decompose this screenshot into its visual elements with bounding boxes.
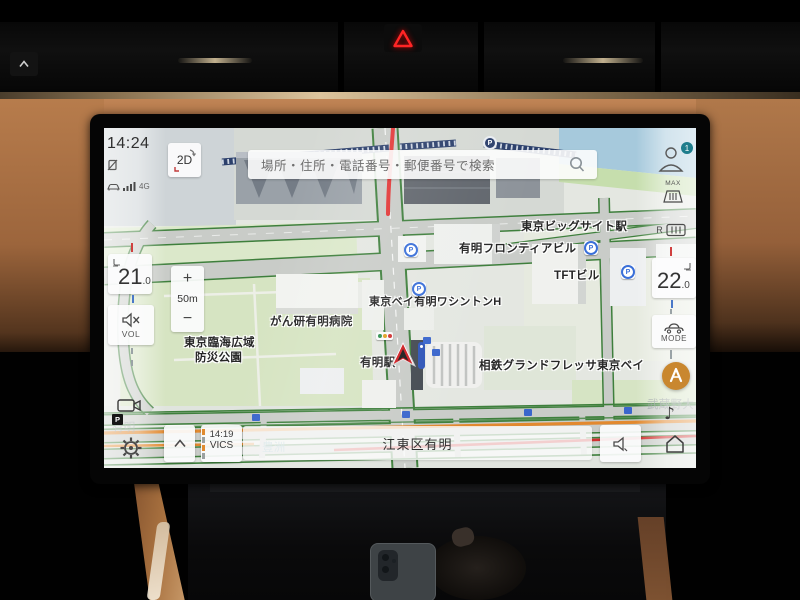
- map-label-washington-hotel: 東京ベイ有明ワシントンH: [369, 293, 502, 309]
- camera-parking-badge: P: [112, 414, 123, 425]
- map-scale: 50m: [177, 293, 197, 305]
- map-label-rinkai-park-1: 東京臨海広域: [184, 334, 255, 350]
- vics-timestamp: 14:19: [201, 429, 242, 440]
- max-defrost-label: MAX: [656, 180, 690, 187]
- vics-congestion-tick: [202, 437, 205, 443]
- drive-mode-label: MODE: [661, 334, 687, 343]
- status-cluster: 14:24 4G: [107, 135, 163, 191]
- current-location-pill: 江東区有明: [243, 426, 592, 460]
- parking-camera-button[interactable]: P: [114, 396, 150, 422]
- map-label-cancer-hospital: がん研有明病院: [270, 313, 353, 329]
- speaker-icon: [611, 435, 631, 453]
- rear-defrost-icon: [666, 223, 686, 237]
- gear-icon: [118, 435, 144, 461]
- chevron-up-icon: [173, 439, 187, 448]
- facility-marker: [524, 409, 532, 416]
- parking-icon: P: [412, 282, 426, 296]
- rear-defrost-label: R: [656, 225, 663, 235]
- vics-label: VICS: [201, 440, 242, 451]
- vent-divider: [655, 22, 661, 92]
- facility-marker: [624, 407, 632, 414]
- map-label-tft-building: TFTビル: [554, 267, 600, 283]
- max-defrost-button[interactable]: MAX: [656, 180, 690, 206]
- temp-slider-hot-tick: [131, 243, 133, 252]
- temp-slider-cold-tick: [671, 300, 673, 308]
- passenger-temperature-control[interactable]: 22.0: [652, 258, 696, 298]
- search-placeholder: 場所・住所・電話番号・郵便番号で検索: [248, 155, 567, 174]
- driver-temp-value: 21: [118, 264, 142, 289]
- dashboard-chrome-strip: [0, 92, 800, 99]
- profile-button[interactable]: 1: [656, 144, 692, 176]
- windshield-defrost-icon: [660, 187, 686, 204]
- facility-marker: [252, 414, 260, 421]
- search-input[interactable]: 場所・住所・電話番号・郵便番号で検索: [248, 150, 597, 179]
- dashboard-leather-left: [0, 99, 104, 364]
- parking-icon: P: [404, 243, 418, 257]
- slider-track: [670, 350, 672, 359]
- map-label-sotetsu-hotel: 相鉄グランドフレッサ東京ベイ: [479, 357, 644, 373]
- drive-mode-button[interactable]: MODE: [652, 315, 696, 348]
- zoom-in-button[interactable]: +: [183, 271, 192, 287]
- facility-marker: [432, 349, 440, 356]
- zoom-out-button[interactable]: −: [183, 311, 192, 327]
- hazard-warning-button[interactable]: [384, 24, 422, 52]
- parking-icon-dark: P: [483, 136, 497, 150]
- temp-slider-cold-tick: [132, 295, 134, 303]
- map-zoom-control: + 50m −: [171, 266, 204, 332]
- camera-icon: [114, 396, 144, 416]
- collapse-bar-button[interactable]: [164, 425, 195, 462]
- slider-track: [670, 309, 672, 314]
- driver-temp-decimal: .0: [142, 276, 150, 287]
- hand-reflection: [428, 536, 526, 600]
- vent-divider: [478, 22, 484, 92]
- volume-mute-button[interactable]: VOL: [108, 305, 154, 345]
- search-icon[interactable]: [567, 155, 587, 175]
- vent-divider: [338, 22, 344, 92]
- map-label-rinkai-park-2: 防災公園: [195, 349, 242, 365]
- map-label-frontier-building: 有明フロンティアビル: [459, 240, 576, 256]
- vics-congestion-tick: [202, 453, 205, 459]
- car-connectivity-icon: [107, 182, 120, 191]
- facility-marker: [402, 411, 410, 418]
- vics-congestion-tick: [202, 429, 205, 435]
- map-label-big-sight-station: 東京ビッグサイト駅: [521, 218, 627, 234]
- slider-track: [131, 348, 133, 366]
- phone-camera: [378, 550, 398, 581]
- home-icon: [664, 433, 686, 455]
- cabin-photo: 東京ビッグサイト駅 有明フロンティアビル TFTビル 東京ベイ有明ワシントンH …: [0, 0, 800, 600]
- traffic-light-icon: [376, 332, 393, 340]
- rotate-view-icon: [168, 143, 201, 177]
- vics-info[interactable]: 14:19 VICS: [201, 425, 242, 462]
- settings-button[interactable]: [118, 435, 148, 465]
- vent-chrome-trim: [178, 58, 252, 63]
- home-button[interactable]: [664, 433, 686, 460]
- nav-app-button[interactable]: [662, 362, 690, 390]
- clock: 14:24: [107, 135, 163, 153]
- current-location-text: 江東区有明: [382, 434, 452, 453]
- vent-chrome-trim: [563, 58, 643, 63]
- profile-notification-badge: 1: [681, 142, 693, 154]
- car-icon: [662, 320, 686, 334]
- dashboard-vents: [0, 22, 800, 92]
- rear-defrost-button[interactable]: R: [652, 222, 690, 238]
- hazard-triangle-icon: [393, 29, 413, 48]
- dash-switch-up[interactable]: [10, 52, 38, 76]
- chevron-up-icon: [18, 60, 30, 68]
- phone-reflection: [370, 543, 436, 600]
- parking-icon: P: [621, 265, 635, 279]
- nav-arrow-logo-icon: [665, 365, 687, 387]
- phone-unavailable-icon: [107, 158, 163, 176]
- passenger-temp-value: 22: [657, 268, 681, 293]
- volume-label: VOL: [122, 329, 141, 339]
- passenger-temp-decimal: .0: [681, 280, 689, 291]
- media-button[interactable]: ♪: [664, 404, 675, 424]
- parking-icon: P: [584, 241, 598, 255]
- mute-speaker-icon: [121, 312, 141, 328]
- music-note-icon: ♪: [664, 404, 675, 424]
- infotainment-screen: 東京ビッグサイト駅 有明フロンティアビル TFTビル 東京ベイ有明ワシントンH …: [104, 128, 696, 468]
- temp-slider-hot-tick: [670, 247, 672, 256]
- driver-temperature-control[interactable]: 21.0: [108, 254, 152, 294]
- current-position-arrow: [390, 340, 416, 368]
- network-type: 4G: [139, 182, 150, 191]
- map-view-mode-button[interactable]: 2D: [168, 143, 201, 177]
- facility-marker: [423, 337, 431, 344]
- vics-congestion-tick: [202, 445, 205, 451]
- signal-strength-icon: [123, 181, 136, 191]
- station-platform-marker: [418, 342, 425, 369]
- dashboard-leather-right: [696, 99, 800, 359]
- audio-output-button[interactable]: [600, 425, 641, 462]
